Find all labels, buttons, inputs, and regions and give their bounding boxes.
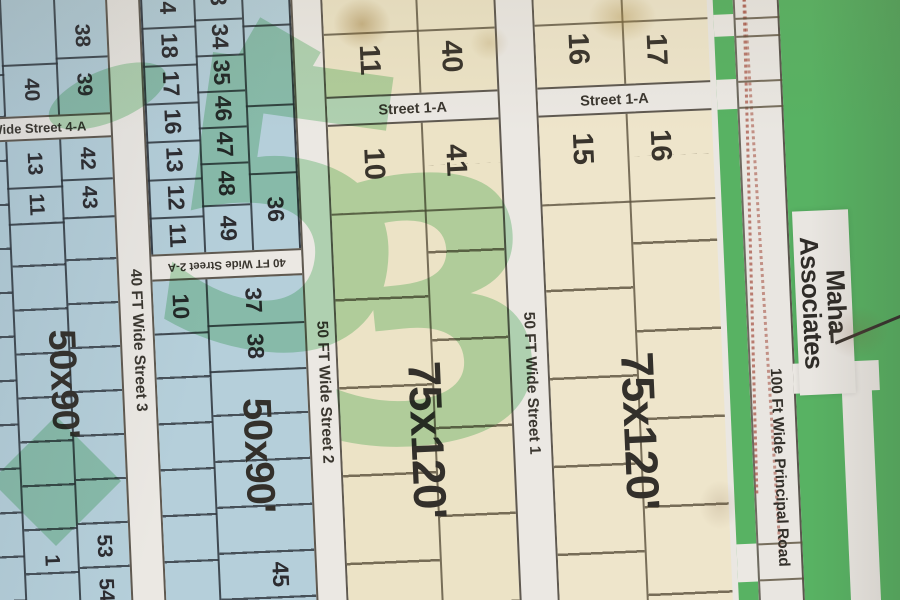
- block-blue-mid: 4 18 17 16 13 12 11 3 34 35 46 47 48 49 …: [138, 0, 319, 600]
- street-3-label: 40 FT Wide Street 3: [126, 269, 150, 413]
- grid-line: [61, 177, 113, 182]
- plot-size-label: 50x90': [233, 397, 283, 514]
- street-gap: [716, 79, 737, 110]
- plot-number: 18: [155, 32, 183, 59]
- plot-number: 15: [565, 132, 599, 166]
- grid-line: [7, 185, 63, 190]
- grid-line: [760, 577, 806, 581]
- plot-number: 13: [160, 146, 188, 173]
- plot-number: 43: [76, 185, 101, 209]
- plot-number: 16: [158, 108, 186, 135]
- plot-number: 38: [241, 333, 269, 360]
- street-4a-label: 40 FT Wide Street 4-A: [0, 117, 120, 141]
- plot-size-label: 75x120': [610, 351, 671, 511]
- street-1a-label: Street 1-A: [528, 89, 702, 113]
- plot-number: 10: [166, 293, 194, 320]
- plot-number: 13: [22, 151, 47, 175]
- grid-line: [324, 26, 495, 36]
- plot-number: 49: [214, 215, 242, 242]
- grid-line: [56, 55, 108, 60]
- plot-number: 16: [560, 32, 594, 66]
- plot-number: 40: [434, 40, 468, 74]
- street-gap: [736, 544, 758, 583]
- plot-number: 34: [206, 23, 234, 50]
- block-cream-left: Street 1-A 11 40 10 41 75x120': [320, 0, 522, 600]
- plot-size-label: 75x120': [397, 360, 458, 520]
- plot-number: 35: [207, 59, 235, 86]
- plot-number: 16: [643, 129, 677, 163]
- developer-name-box: Maha Associates: [792, 209, 856, 395]
- plot-number: 41: [438, 143, 472, 177]
- site-plan-photo: 38 41 40 39 13 11 42 43 1 53 54 40 FT Wi…: [0, 0, 900, 600]
- plot-number: 46: [209, 95, 237, 122]
- grid-line: [2, 63, 58, 68]
- plot-number: 4: [154, 1, 182, 15]
- plot-number: 10: [356, 147, 390, 181]
- map-canvas: 38 41 40 39 13 11 42 43 1 53 54 40 FT Wi…: [0, 0, 900, 600]
- plot-number: 11: [163, 223, 191, 248]
- street-2a-band: 40 FT Wide Street 2-A: [151, 248, 302, 282]
- plot-number: 17: [157, 70, 185, 97]
- street-2a-label: 40 FT Wide Street 2-A: [152, 255, 302, 274]
- plot-number: 11: [23, 193, 48, 216]
- plot-number: 1: [39, 554, 63, 567]
- plot-number: 47: [210, 131, 238, 158]
- developer-name: Maha Associates: [795, 209, 852, 395]
- plot-number: 40: [18, 78, 43, 102]
- street-1a-label: Street 1-A: [327, 97, 499, 120]
- plot-number: 39: [71, 72, 96, 96]
- plot-number: 12: [162, 184, 190, 211]
- plot-number: 54: [93, 578, 118, 600]
- block-cream-right: Street 1-A 16 17 15 16 75x120': [531, 0, 735, 600]
- principal-road-label: 100 Ft Wide Principal Road: [766, 368, 793, 567]
- plot-number: 45: [266, 561, 294, 588]
- plot-number: 11: [352, 44, 386, 76]
- street-gap: [713, 14, 734, 37]
- plot-number: 42: [74, 146, 99, 170]
- street-1a-band: Street 1-A: [537, 80, 711, 118]
- grid-line: [207, 321, 304, 328]
- plot-number: 48: [212, 170, 240, 197]
- street-1-label: 50 FT Wide Street 1: [519, 311, 543, 455]
- plot-number: 37: [239, 287, 267, 314]
- street-1a-band: Street 1-A: [327, 89, 499, 126]
- plot-number: 36: [261, 196, 289, 223]
- developer-name-line2: Associates: [795, 210, 828, 395]
- plot-number: 38: [69, 23, 94, 47]
- plot-number: 17: [639, 33, 673, 67]
- street-2-label: 50 FT Wide Street 2: [312, 320, 336, 464]
- plot-number: 53: [91, 534, 116, 558]
- street-4a-band: 40 FT Wide Street 4-A: [0, 112, 111, 143]
- plot-size-label: 50x90': [39, 328, 87, 438]
